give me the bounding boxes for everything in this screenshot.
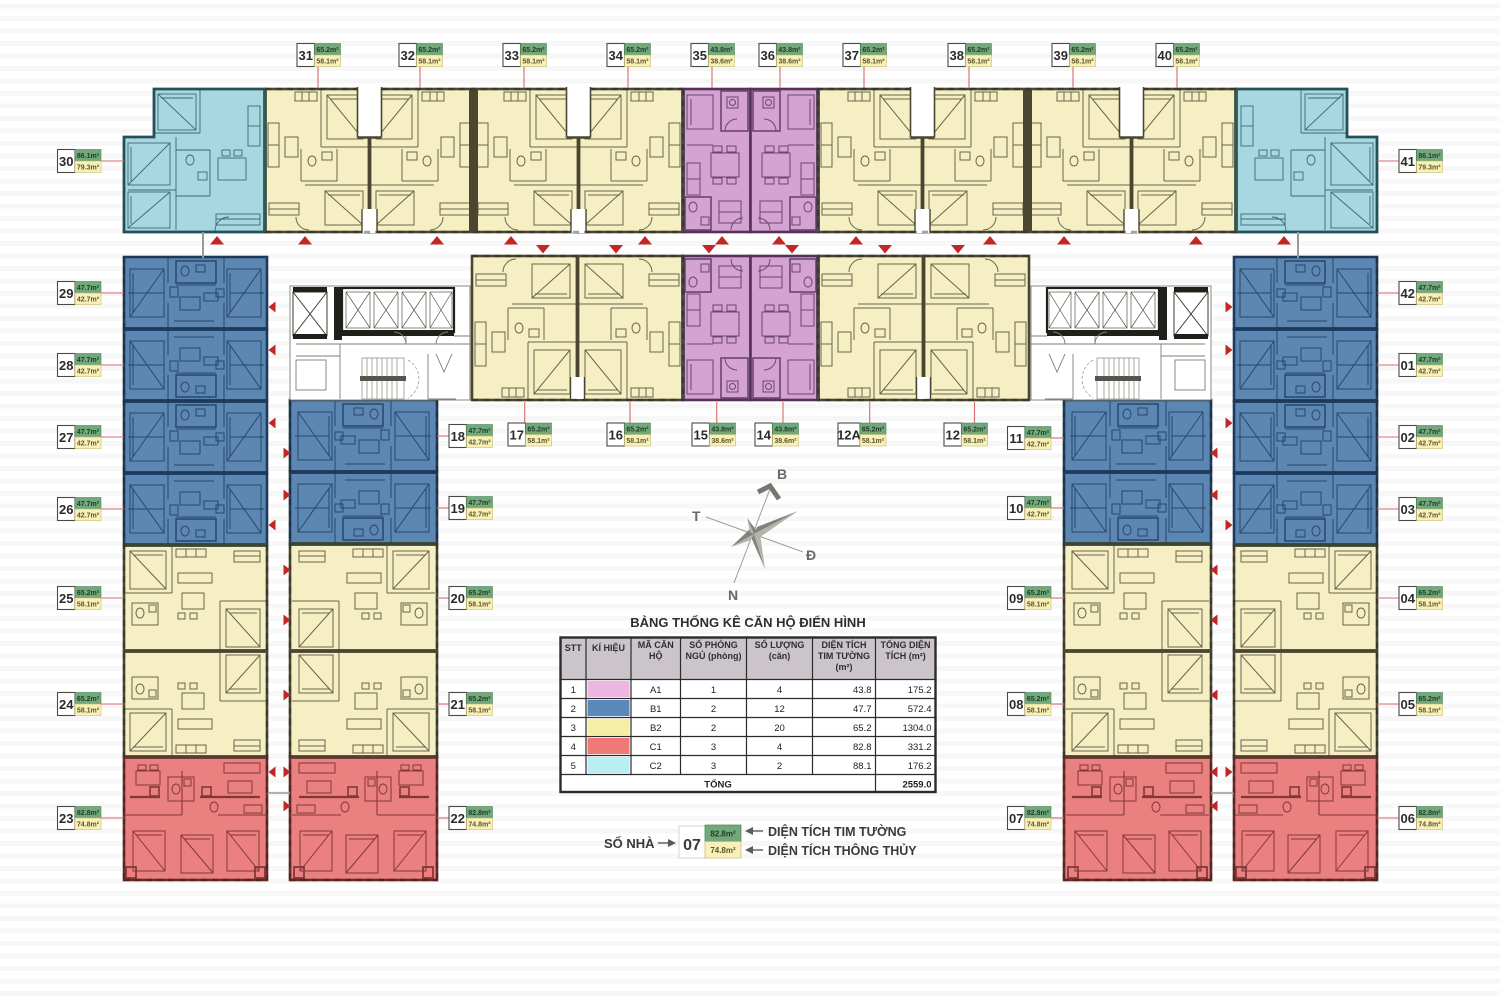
svg-text:SỐ NHÀ: SỐ NHÀ	[604, 836, 655, 851]
svg-text:11: 11	[1009, 431, 1023, 446]
svg-text:TÍCH (m²): TÍCH (m²)	[885, 651, 926, 661]
svg-text:65.2m²: 65.2m²	[1418, 590, 1441, 597]
svg-text:C1: C1	[650, 742, 662, 753]
svg-text:BẢNG THỐNG KÊ CĂN HỘ ĐIỂN HÌNH: BẢNG THỐNG KÊ CĂN HỘ ĐIỂN HÌNH	[630, 615, 865, 630]
svg-text:41: 41	[1401, 154, 1415, 169]
svg-text:58.1m²: 58.1m²	[862, 438, 885, 445]
svg-text:23: 23	[59, 811, 73, 826]
svg-text:47.7m²: 47.7m²	[77, 429, 100, 436]
svg-text:B: B	[777, 466, 787, 482]
svg-text:(m²): (m²)	[836, 662, 853, 672]
svg-text:65.2m²: 65.2m²	[468, 590, 491, 597]
svg-text:47.7m²: 47.7m²	[1027, 430, 1050, 437]
svg-text:58.1m²: 58.1m²	[1027, 707, 1050, 714]
svg-text:N: N	[728, 587, 738, 603]
svg-text:58.1m²: 58.1m²	[1071, 58, 1094, 65]
svg-text:74.8m²: 74.8m²	[77, 821, 100, 828]
svg-text:58.1m²: 58.1m²	[862, 58, 885, 65]
svg-text:58.1m²: 58.1m²	[626, 438, 649, 445]
svg-text:47.7m²: 47.7m²	[468, 428, 491, 435]
svg-text:40: 40	[1158, 48, 1172, 63]
svg-text:175.2: 175.2	[908, 685, 932, 696]
svg-text:65.2m²: 65.2m²	[1027, 696, 1050, 703]
svg-text:18: 18	[451, 429, 465, 444]
svg-text:19: 19	[451, 501, 465, 516]
svg-text:16: 16	[609, 428, 623, 443]
svg-text:4: 4	[571, 742, 576, 753]
svg-text:47.7m²: 47.7m²	[77, 357, 100, 364]
svg-text:TỔNG DIỆN: TỔNG DIỆN	[880, 639, 930, 650]
svg-text:58.1m²: 58.1m²	[77, 601, 100, 608]
svg-text:14: 14	[757, 428, 772, 443]
svg-text:42.7m²: 42.7m²	[1418, 296, 1441, 303]
svg-text:3: 3	[711, 742, 716, 753]
svg-text:(căn): (căn)	[769, 651, 791, 661]
svg-text:12: 12	[774, 704, 785, 715]
svg-text:82.8: 82.8	[853, 742, 872, 753]
svg-text:58.1m²: 58.1m²	[626, 58, 649, 65]
svg-text:B1: B1	[650, 704, 662, 715]
svg-text:3: 3	[571, 723, 576, 734]
svg-text:3: 3	[711, 761, 716, 772]
svg-text:28: 28	[59, 358, 73, 373]
svg-text:C2: C2	[650, 761, 662, 772]
svg-text:17: 17	[510, 428, 524, 443]
svg-text:04: 04	[1401, 591, 1416, 606]
svg-text:42.7m²: 42.7m²	[468, 439, 491, 446]
svg-text:47.7: 47.7	[853, 704, 872, 715]
svg-text:65.2m²: 65.2m²	[1418, 696, 1441, 703]
svg-text:82.8m²: 82.8m²	[77, 810, 100, 817]
svg-text:58.1m²: 58.1m²	[1418, 707, 1441, 714]
svg-text:47.7m²: 47.7m²	[468, 500, 491, 507]
svg-text:SỐ LƯỢNG: SỐ LƯỢNG	[755, 639, 805, 650]
svg-text:47.7m²: 47.7m²	[1418, 429, 1441, 436]
svg-text:42.7m²: 42.7m²	[1418, 512, 1441, 519]
svg-text:DIỆN TÍCH TIM TƯỜNG: DIỆN TÍCH TIM TƯỜNG	[768, 824, 906, 839]
svg-text:38: 38	[950, 48, 964, 63]
svg-text:58.1m²: 58.1m²	[77, 707, 100, 714]
svg-text:43.8m²: 43.8m²	[711, 426, 734, 433]
svg-text:65.2: 65.2	[853, 723, 872, 734]
svg-text:42.7m²: 42.7m²	[77, 368, 100, 375]
svg-text:74.8m²: 74.8m²	[468, 821, 491, 828]
svg-text:58.1m²: 58.1m²	[468, 601, 491, 608]
svg-text:43.8m²: 43.8m²	[710, 47, 733, 54]
svg-text:74.8m²: 74.8m²	[1418, 821, 1441, 828]
svg-text:331.2: 331.2	[908, 742, 932, 753]
svg-text:35: 35	[693, 48, 707, 63]
svg-text:38.6m²: 38.6m²	[710, 58, 733, 65]
svg-text:65.2m²: 65.2m²	[1175, 47, 1198, 54]
svg-text:SỐ PHÒNG: SỐ PHÒNG	[689, 639, 738, 650]
svg-text:38.6m²: 38.6m²	[711, 438, 734, 445]
svg-text:MÃ CĂN: MÃ CĂN	[638, 640, 674, 650]
svg-text:32: 32	[401, 48, 415, 63]
svg-text:65.2m²: 65.2m²	[418, 47, 441, 54]
svg-text:47.7m²: 47.7m²	[1418, 357, 1441, 364]
svg-text:01: 01	[1401, 358, 1415, 373]
svg-text:22: 22	[451, 811, 465, 826]
svg-text:74.8m²: 74.8m²	[710, 846, 736, 855]
svg-text:HỘ: HỘ	[649, 650, 663, 661]
svg-text:07: 07	[1009, 811, 1023, 826]
svg-text:27: 27	[59, 430, 73, 445]
svg-text:42.7m²: 42.7m²	[77, 512, 100, 519]
svg-text:42.7m²: 42.7m²	[1027, 441, 1050, 448]
svg-text:65.2m²: 65.2m²	[1027, 590, 1050, 597]
svg-text:4: 4	[777, 685, 782, 696]
svg-text:47.7m²: 47.7m²	[1418, 501, 1441, 508]
svg-text:06: 06	[1401, 811, 1415, 826]
svg-text:58.1m²: 58.1m²	[1418, 601, 1441, 608]
svg-text:T: T	[692, 508, 701, 524]
svg-text:12A: 12A	[837, 428, 861, 443]
svg-text:36: 36	[761, 48, 775, 63]
svg-text:37: 37	[845, 48, 859, 63]
svg-text:47.7m²: 47.7m²	[1027, 500, 1050, 507]
svg-text:176.2: 176.2	[908, 761, 932, 772]
svg-text:42.7m²: 42.7m²	[77, 440, 100, 447]
svg-text:82.8m²: 82.8m²	[710, 830, 736, 839]
svg-text:33: 33	[505, 48, 519, 63]
svg-text:86.1m²: 86.1m²	[77, 153, 100, 160]
svg-text:2559.0: 2559.0	[902, 780, 931, 791]
svg-text:08: 08	[1009, 697, 1023, 712]
svg-text:TỔNG: TỔNG	[704, 779, 731, 791]
svg-text:NGỦ (phòng): NGỦ (phòng)	[686, 650, 742, 661]
svg-text:1: 1	[571, 685, 576, 696]
svg-text:43.8m²: 43.8m²	[774, 426, 797, 433]
svg-text:A1: A1	[650, 685, 662, 696]
svg-text:12: 12	[946, 428, 960, 443]
svg-text:572.4: 572.4	[908, 704, 932, 715]
svg-text:02: 02	[1401, 430, 1415, 445]
svg-text:2: 2	[711, 723, 716, 734]
svg-text:05: 05	[1401, 697, 1415, 712]
svg-text:STT: STT	[565, 643, 583, 653]
svg-text:58.1m²: 58.1m²	[316, 58, 339, 65]
svg-text:65.2m²: 65.2m²	[77, 590, 100, 597]
svg-text:39: 39	[1054, 48, 1068, 63]
svg-text:65.2m²: 65.2m²	[862, 47, 885, 54]
svg-text:07: 07	[683, 837, 701, 854]
svg-text:58.1m²: 58.1m²	[418, 58, 441, 65]
svg-text:21: 21	[451, 697, 465, 712]
svg-text:20: 20	[774, 723, 785, 734]
svg-text:88.1: 88.1	[853, 761, 872, 772]
svg-text:34: 34	[609, 48, 624, 63]
svg-text:5: 5	[571, 761, 576, 772]
svg-text:58.1m²: 58.1m²	[963, 438, 986, 445]
svg-text:79.3m²: 79.3m²	[1418, 164, 1441, 171]
svg-text:65.2m²: 65.2m²	[963, 426, 986, 433]
svg-text:42.7m²: 42.7m²	[468, 511, 491, 518]
svg-text:29: 29	[59, 286, 73, 301]
svg-text:09: 09	[1009, 591, 1023, 606]
svg-text:47.7m²: 47.7m²	[77, 285, 100, 292]
svg-text:79.3m²: 79.3m²	[77, 164, 100, 171]
svg-text:65.2m²: 65.2m²	[967, 47, 990, 54]
svg-text:82.8m²: 82.8m²	[1418, 810, 1441, 817]
svg-text:Đ: Đ	[806, 547, 816, 563]
svg-text:25: 25	[59, 591, 73, 606]
svg-text:65.2m²: 65.2m²	[626, 426, 649, 433]
svg-text:03: 03	[1401, 502, 1415, 517]
svg-text:58.1m²: 58.1m²	[1175, 58, 1198, 65]
svg-text:26: 26	[59, 502, 73, 517]
svg-text:65.2m²: 65.2m²	[77, 696, 100, 703]
svg-text:38.6m²: 38.6m²	[774, 438, 797, 445]
svg-text:58.1m²: 58.1m²	[527, 438, 550, 445]
svg-text:65.2m²: 65.2m²	[316, 47, 339, 54]
svg-text:86.1m²: 86.1m²	[1418, 153, 1441, 160]
svg-text:4: 4	[777, 742, 782, 753]
svg-text:2: 2	[571, 704, 576, 715]
svg-text:24: 24	[59, 697, 74, 712]
svg-text:43.8m²: 43.8m²	[778, 47, 801, 54]
svg-text:15: 15	[694, 428, 708, 443]
svg-text:65.2m²: 65.2m²	[1071, 47, 1094, 54]
svg-text:65.2m²: 65.2m²	[527, 426, 550, 433]
svg-text:42.7m²: 42.7m²	[1418, 368, 1441, 375]
svg-text:42: 42	[1401, 286, 1415, 301]
svg-text:82.8m²: 82.8m²	[468, 810, 491, 817]
svg-text:DIỆN TÍCH THÔNG THỦY: DIỆN TÍCH THÔNG THỦY	[768, 843, 917, 858]
svg-text:43.8: 43.8	[853, 685, 872, 696]
svg-text:42.7m²: 42.7m²	[1027, 511, 1050, 518]
svg-text:DIỆN TÍCH: DIỆN TÍCH	[822, 639, 867, 650]
svg-text:74.8m²: 74.8m²	[1027, 821, 1050, 828]
svg-text:65.2m²: 65.2m²	[626, 47, 649, 54]
svg-text:KÍ HIỆU: KÍ HIỆU	[592, 642, 625, 653]
svg-text:30: 30	[59, 154, 73, 169]
svg-text:65.2m²: 65.2m²	[522, 47, 545, 54]
svg-text:10: 10	[1009, 501, 1023, 516]
svg-text:58.1m²: 58.1m²	[522, 58, 545, 65]
svg-text:65.2m²: 65.2m²	[468, 696, 491, 703]
svg-text:58.1m²: 58.1m²	[967, 58, 990, 65]
svg-text:20: 20	[451, 591, 465, 606]
svg-text:1: 1	[711, 685, 716, 696]
svg-text:65.2m²: 65.2m²	[862, 426, 885, 433]
svg-text:1304.0: 1304.0	[902, 723, 931, 734]
svg-text:58.1m²: 58.1m²	[468, 707, 491, 714]
svg-text:B2: B2	[650, 723, 662, 734]
svg-text:47.7m²: 47.7m²	[1418, 285, 1441, 292]
svg-text:38.6m²: 38.6m²	[778, 58, 801, 65]
svg-text:42.7m²: 42.7m²	[1418, 440, 1441, 447]
svg-text:47.7m²: 47.7m²	[77, 501, 100, 508]
svg-text:2: 2	[777, 761, 782, 772]
svg-text:TIM TƯỜNG: TIM TƯỜNG	[818, 650, 870, 661]
svg-text:2: 2	[711, 704, 716, 715]
svg-text:42.7m²: 42.7m²	[77, 296, 100, 303]
svg-text:31: 31	[299, 48, 313, 63]
svg-text:82.8m²: 82.8m²	[1027, 810, 1050, 817]
svg-text:58.1m²: 58.1m²	[1027, 601, 1050, 608]
